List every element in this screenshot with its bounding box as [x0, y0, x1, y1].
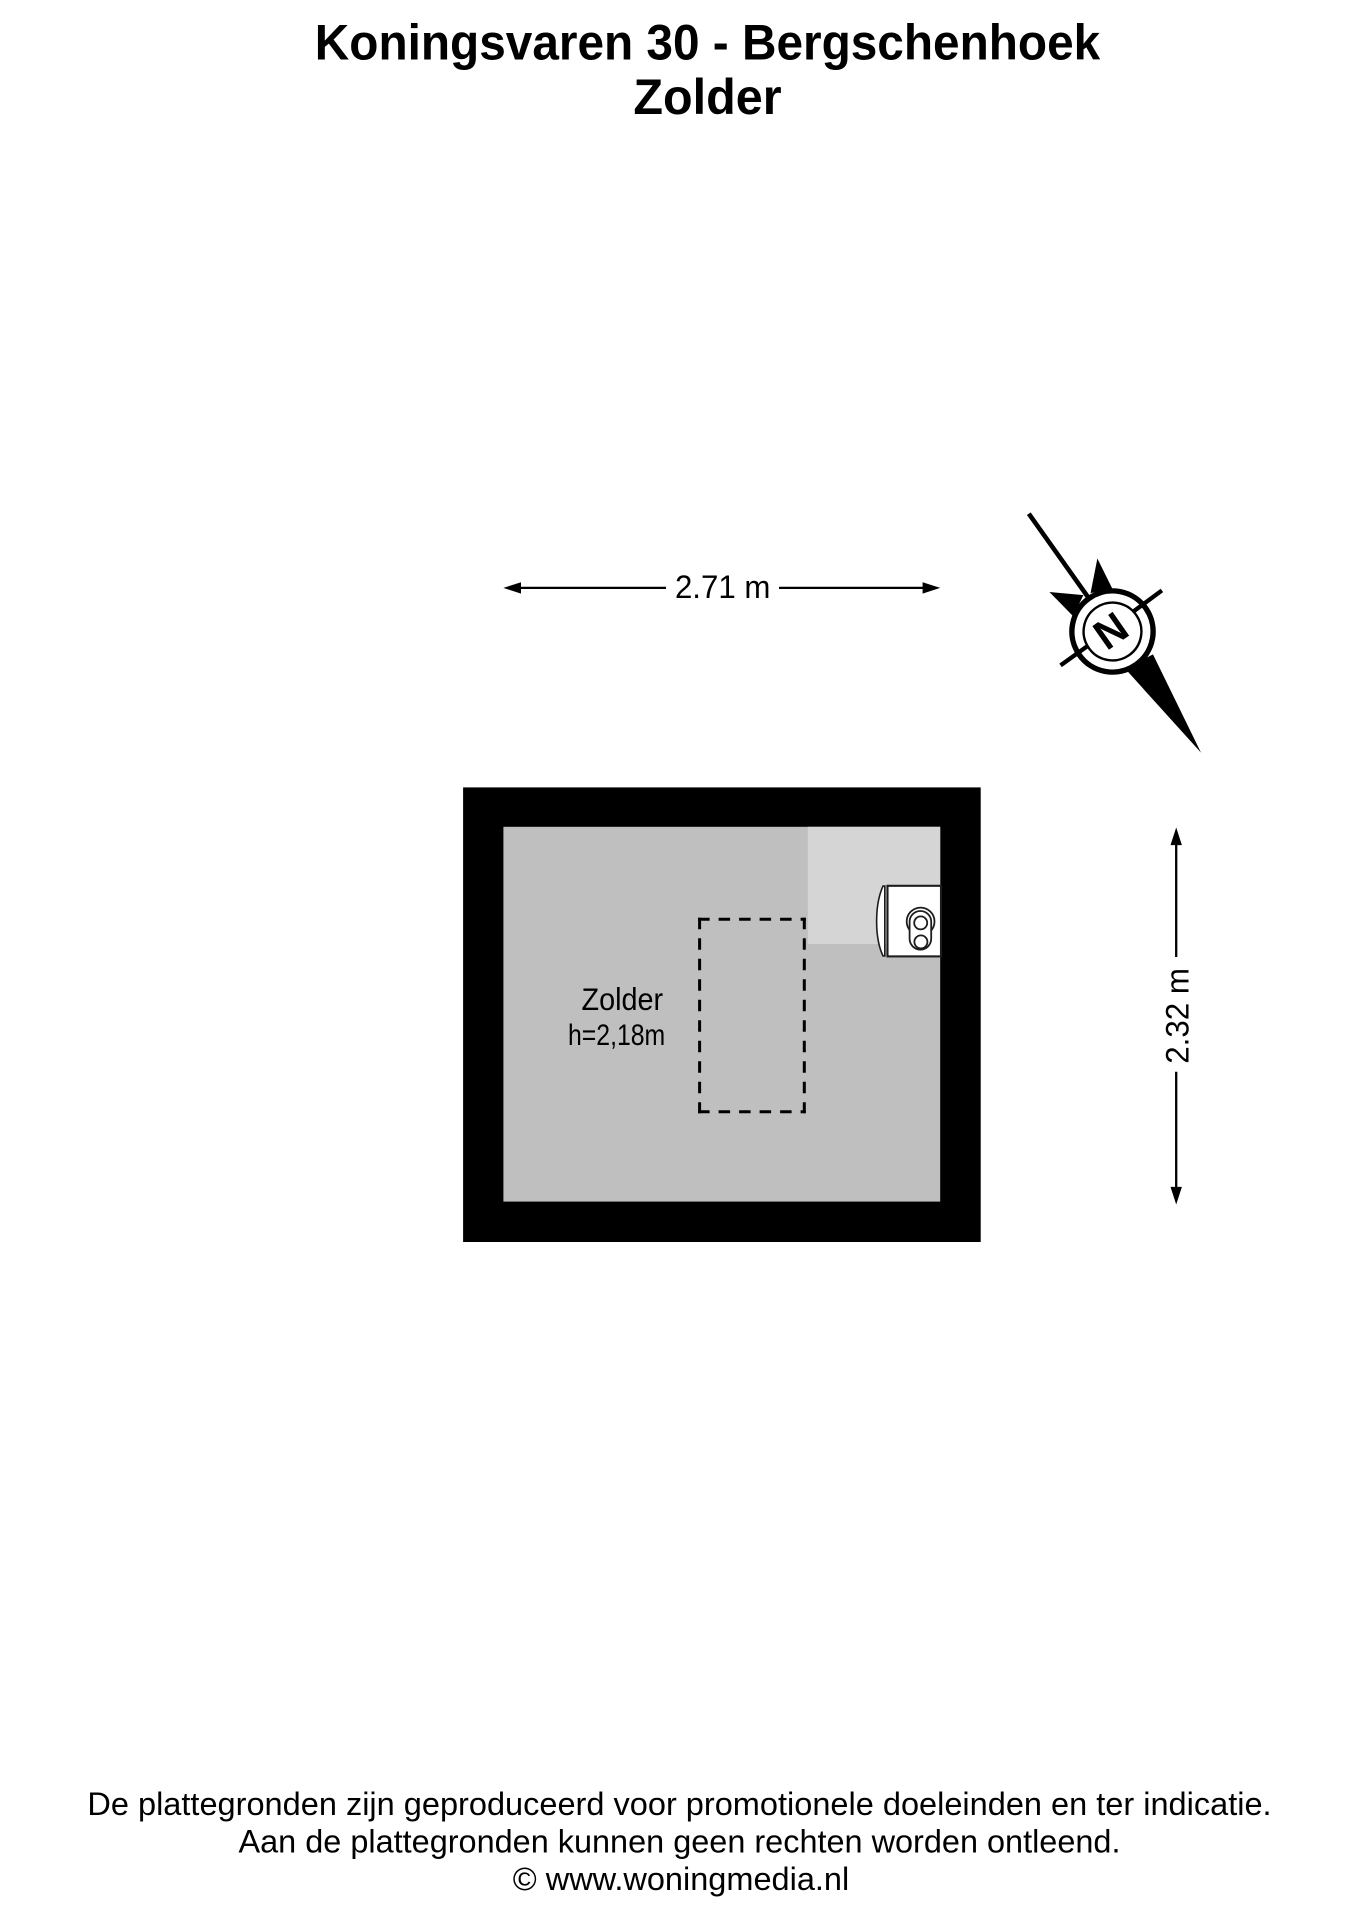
svg-text:Zolder: Zolder: [633, 69, 781, 125]
svg-text:Zolder: Zolder: [582, 981, 664, 1017]
svg-text:2.71 m: 2.71 m: [675, 568, 771, 605]
svg-text:Koningsvaren 30 - Bergschenhoe: Koningsvaren 30 - Bergschenhoek: [315, 15, 1101, 71]
svg-text:Aan de plattegronden kunnen ge: Aan de plattegronden kunnen geen rechten…: [239, 1824, 1121, 1860]
svg-text:De plattegronden zijn geproduc: De plattegronden zijn geproduceerd voor …: [87, 1786, 1271, 1822]
svg-text:h=2,18m: h=2,18m: [568, 1020, 665, 1052]
svg-text:2.32 m: 2.32 m: [1159, 968, 1196, 1064]
svg-text:© www.woningmedia.nl: © www.woningmedia.nl: [513, 1861, 849, 1897]
